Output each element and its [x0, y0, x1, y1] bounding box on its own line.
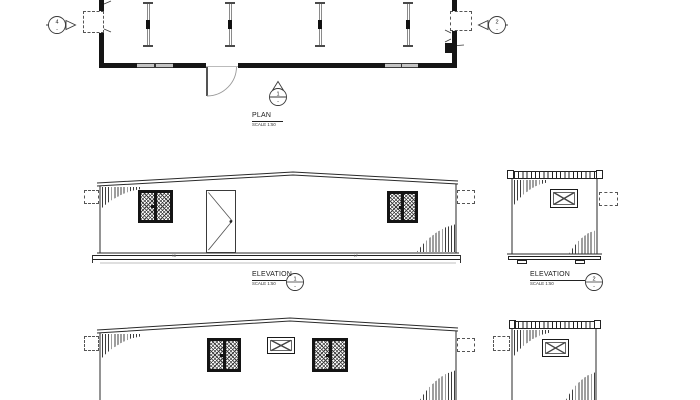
plan-marker-left-number: 4 — [55, 19, 58, 25]
plan-door-threshold — [206, 66, 238, 67]
window-latch — [399, 206, 402, 209]
window-latch — [220, 354, 223, 357]
mesh-window — [387, 191, 418, 223]
plan-window — [385, 63, 418, 68]
plan-marker-right-number: 2 — [495, 19, 498, 25]
ac-unit-tab — [457, 338, 475, 352]
corner-hatch — [102, 187, 142, 208]
ac-unit-tab — [84, 336, 99, 351]
plan-door — [207, 67, 237, 97]
plan-wall-unit — [445, 43, 453, 53]
base-mark: 9B — [172, 254, 176, 258]
louver-vent — [267, 337, 295, 354]
roof-corrugation-band — [514, 321, 595, 329]
ac-unit-tab — [84, 190, 99, 204]
plan-title: PLAN — [252, 112, 283, 122]
roof-edge-cap — [507, 170, 514, 179]
door — [206, 190, 236, 253]
base-skid — [92, 255, 461, 260]
elevation-front-title: ELEVATION — [252, 271, 286, 281]
roof-edge-cap — [596, 170, 603, 179]
plan-scale: SCALE 1:50 — [252, 122, 276, 127]
elevation-side-scale: SCALE 1:50 — [530, 281, 556, 286]
corner-hatch — [514, 180, 548, 205]
mesh-window — [207, 338, 241, 372]
corner-hatch — [417, 222, 455, 252]
plan-title-block: PLAN SCALE 1:50 — [252, 112, 302, 132]
plan-bottom-wall-segment — [104, 63, 137, 68]
base-foot — [517, 260, 527, 264]
elevation-side-marker-number: 2 — [592, 276, 595, 282]
corner-hatch — [102, 334, 142, 358]
plan-marker-front-dash: - — [277, 98, 279, 104]
louver-vent — [550, 189, 578, 208]
mesh-window — [312, 338, 348, 372]
plan-ac-unit-left — [83, 11, 104, 33]
window-latch — [151, 205, 154, 208]
elevation-front-marker-number: 1 — [293, 276, 296, 282]
corner-hatch — [569, 228, 596, 254]
corner-hatch — [566, 370, 595, 400]
plan-window — [137, 63, 173, 68]
elevation-front-scale: SCALE 1:50 — [252, 281, 276, 286]
elevation-side-marker-dash: - — [593, 283, 595, 289]
window-mullion — [401, 64, 403, 67]
drawing-sheet: 4 - 2 - 1 - PLAN SCALE 1:50 — [0, 0, 700, 400]
base-tick — [92, 255, 93, 263]
plan-bottom-wall-segment — [418, 63, 452, 68]
plan-marker-right-dash: - — [496, 26, 498, 32]
ac-unit-tab — [493, 336, 510, 351]
plan-bottom-wall-segment — [238, 63, 385, 68]
base-tick — [460, 255, 461, 263]
window-latch — [326, 354, 329, 357]
plan-post-symbol — [225, 2, 235, 47]
door-knob — [229, 220, 232, 223]
window-mullion — [154, 64, 156, 67]
elevation-front-marker-dash: - — [294, 283, 296, 289]
mesh-window — [138, 190, 173, 223]
plan-marker-left-dash: - — [56, 26, 58, 32]
plan-bottom-wall-segment — [173, 63, 206, 68]
plan-ac-unit-right — [450, 11, 472, 31]
roof-edge-cap — [594, 320, 601, 329]
plan-marker-front-number: 1 — [276, 91, 279, 97]
ac-unit-tab — [457, 190, 475, 204]
elevation-side-title: ELEVATION — [530, 271, 585, 281]
plan-post-symbol — [315, 2, 325, 47]
elevation-rear-outline — [97, 318, 458, 400]
base-mark: LF — [354, 254, 358, 258]
plan-door-swing-arc — [207, 67, 237, 97]
corner-hatch — [420, 368, 455, 400]
plan-post-symbol — [403, 2, 413, 47]
plan-marker-right-icon — [479, 17, 509, 34]
plan-marker-left-icon — [46, 17, 76, 34]
base-foot — [575, 260, 585, 264]
ac-unit-tab — [599, 192, 618, 206]
plan-post-symbol — [143, 2, 153, 47]
elevation-side-title-block: ELEVATION SCALE 1:50 — [530, 271, 585, 291]
louver-vent — [542, 339, 569, 357]
roof-corrugation-band — [514, 171, 596, 179]
